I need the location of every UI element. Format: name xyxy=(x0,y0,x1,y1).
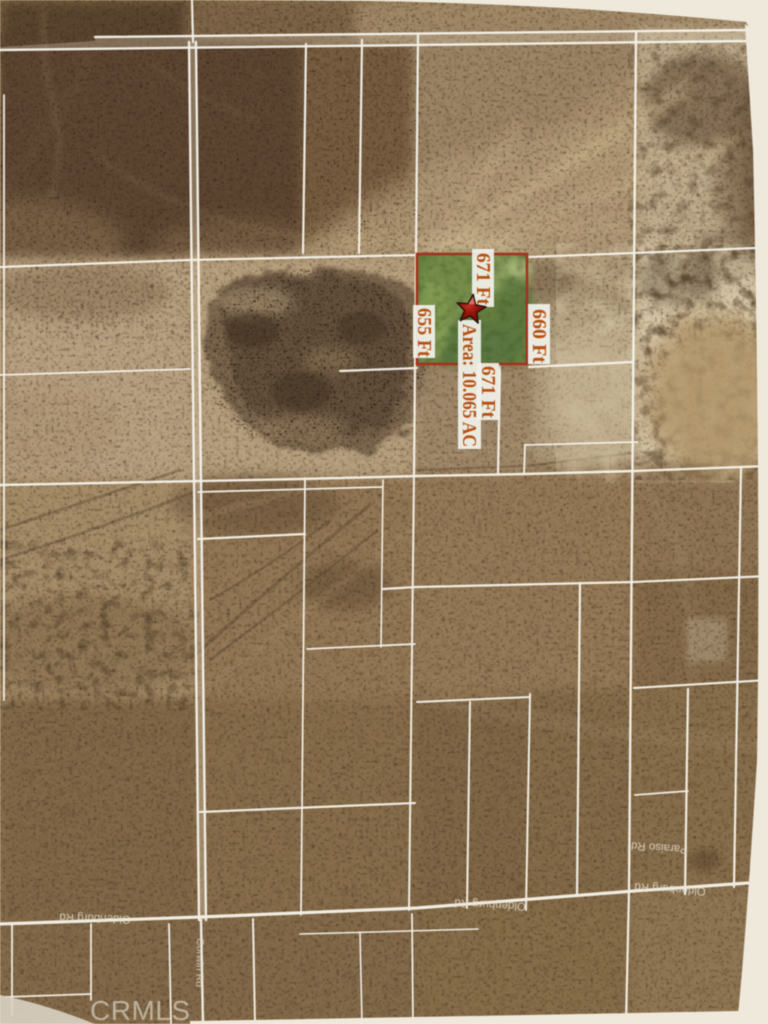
svg-text:655 Ft: 655 Ft xyxy=(413,308,435,357)
svg-text:Area: 10.065 AC: Area: 10.065 AC xyxy=(458,324,480,447)
svg-text:671 Ft: 671 Ft xyxy=(472,253,494,305)
svg-text:CRMLS: CRMLS xyxy=(90,995,191,1024)
svg-text:660 Ft: 660 Ft xyxy=(528,309,550,363)
svg-text:Corwin Rd: Corwin Rd xyxy=(193,938,206,987)
svg-text:Oldenburg Rd: Oldenburg Rd xyxy=(59,911,131,925)
